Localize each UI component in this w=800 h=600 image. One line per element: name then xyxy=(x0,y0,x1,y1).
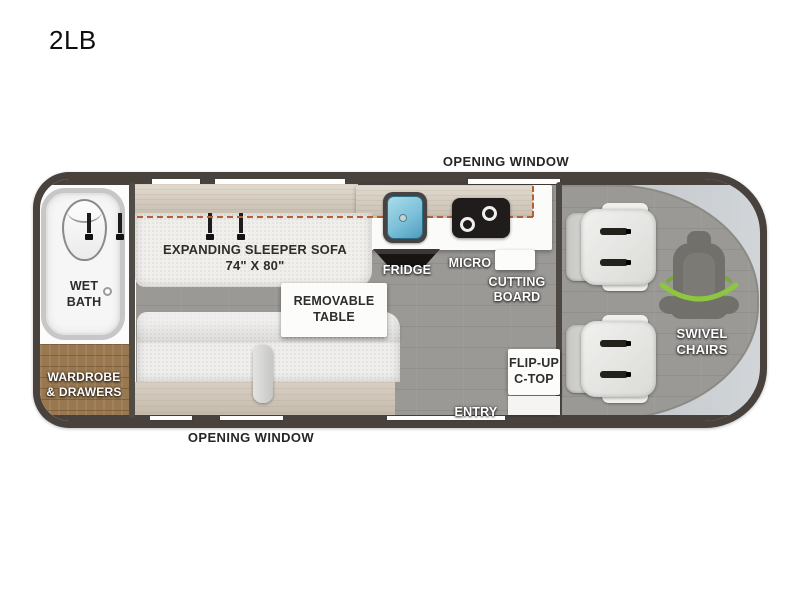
table-leg xyxy=(253,345,273,403)
window-strip xyxy=(150,416,192,420)
cooktop-icon xyxy=(452,198,510,238)
flip-up-ctop-label: FLIP-UP C-TOP xyxy=(504,356,564,387)
bed-extent-dashed-line xyxy=(532,186,534,217)
toilet-lid-line xyxy=(67,209,102,223)
burner-icon xyxy=(460,217,475,232)
chair-cushion xyxy=(581,209,656,285)
window-strip xyxy=(468,179,560,184)
sink-icon xyxy=(383,192,427,243)
captain-chair-driver xyxy=(566,206,658,288)
opening-window-label-bottom: OPENING WINDOW xyxy=(141,430,361,445)
shower-drain-icon xyxy=(103,287,112,296)
swivel-chairs-label: SWIVEL CHAIRS xyxy=(652,326,752,358)
van-interior: WET BATH WARDROBE & DRAWERS EXPANDING SL… xyxy=(40,179,760,421)
page-title: 2LB xyxy=(49,25,97,56)
entry-step xyxy=(508,396,560,415)
toilet-icon xyxy=(62,199,107,261)
sleeper-sofa-label: EXPANDING SLEEPER SOFA 74" X 80" xyxy=(145,242,365,273)
flip-up-ctop: FLIP-UP C-TOP xyxy=(508,349,560,395)
bottom-wall xyxy=(40,415,760,421)
overhead-cabinet-counter xyxy=(135,184,358,214)
removable-table: REMOVABLE TABLE xyxy=(281,283,387,337)
seat-rail-icon xyxy=(600,340,628,347)
captain-chair-passenger xyxy=(566,318,658,400)
faucet-icon xyxy=(399,214,407,222)
seat-rail-icon xyxy=(600,371,628,378)
swivel-seat-icon xyxy=(658,231,740,329)
opening-window-label-top: OPENING WINDOW xyxy=(396,154,616,169)
removable-table-label: REMOVABLE TABLE xyxy=(281,294,387,325)
wet-bath-label: WET BATH xyxy=(40,279,128,310)
wardrobe-cabinet: WARDROBE & DRAWERS xyxy=(40,344,129,415)
burner-icon xyxy=(482,206,497,221)
van-body-outline: WET BATH WARDROBE & DRAWERS EXPANDING SL… xyxy=(33,172,767,428)
chair-cushion xyxy=(581,321,656,397)
microwave-box xyxy=(495,250,535,270)
wardrobe-label: WARDROBE & DRAWERS xyxy=(40,370,130,400)
cutting-board-label: CUTTING BOARD xyxy=(477,275,557,305)
seat-rail-icon xyxy=(600,228,628,235)
seat-rail-icon xyxy=(600,259,628,266)
seat-belt-icon xyxy=(87,213,91,233)
window-strip xyxy=(220,416,283,420)
seat-belt-icon xyxy=(118,213,122,233)
entry-label: ENTRY xyxy=(438,405,514,420)
